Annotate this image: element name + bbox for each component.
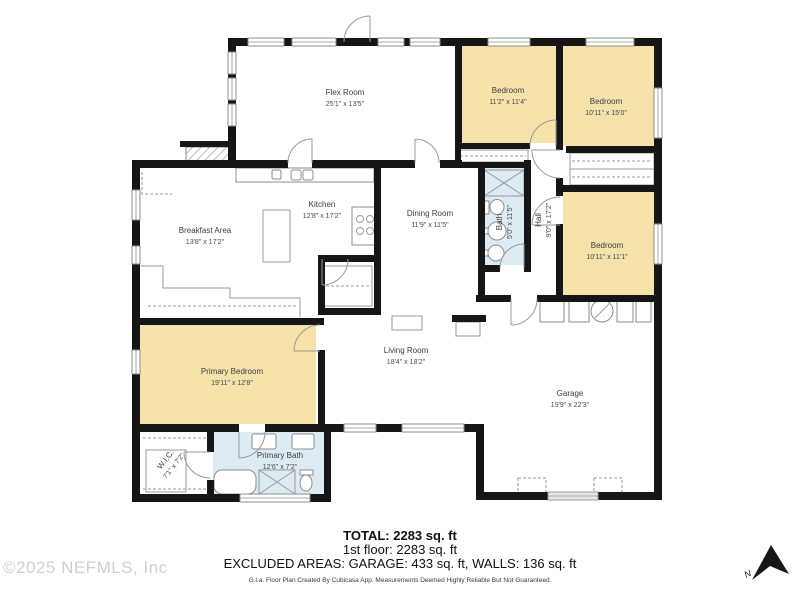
- console: [456, 322, 480, 336]
- window: [228, 52, 236, 74]
- svg-text:Bath: Bath: [495, 214, 504, 230]
- svg-text:11'9" x 11'5": 11'9" x 11'5": [411, 222, 449, 229]
- window: [586, 38, 634, 46]
- svg-text:5'0" x 11'5": 5'0" x 11'5": [507, 204, 514, 238]
- bedroom2-area: [563, 46, 654, 146]
- window: [248, 38, 284, 46]
- toilet: [300, 475, 312, 491]
- watermark: ©2025 NEFMLS, Inc: [3, 558, 168, 578]
- svg-text:Breakfast Area: Breakfast Area: [179, 226, 232, 235]
- svg-text:12'8" x 17'2": 12'8" x 17'2": [303, 213, 342, 220]
- toilet: [490, 200, 504, 215]
- svg-text:10'11" x 15'0": 10'11" x 15'0": [585, 110, 627, 117]
- bathtub: [214, 470, 256, 494]
- breakfast-bench: [141, 266, 300, 317]
- svg-text:9'0" x 17'2": 9'0" x 17'2": [546, 202, 553, 237]
- room-label-living: Living Room 18'4" x 18'2": [384, 346, 429, 366]
- window: [132, 190, 140, 220]
- svg-text:18'4" x 18'2": 18'4" x 18'2": [387, 359, 426, 366]
- appliance: [540, 300, 564, 322]
- appliance: [617, 300, 633, 322]
- first-floor-area: 1st floor: 2283 sq. ft: [0, 543, 800, 557]
- kitchen-sink-left: [291, 170, 301, 180]
- floor-plan: Flex Room 25'1" x 13'5" Bedroom 11'2" x …: [0, 0, 800, 600]
- vanity-sink: [292, 434, 314, 449]
- garage-door: [548, 492, 598, 500]
- window: [292, 38, 336, 46]
- svg-text:Kitchen: Kitchen: [309, 200, 336, 209]
- window: [378, 38, 404, 46]
- room-label-kitchen: Kitchen 12'8" x 17'2": [303, 200, 342, 220]
- garage-marker: [518, 478, 546, 494]
- svg-text:19'9" x 22'3": 19'9" x 22'3": [551, 402, 590, 409]
- svg-text:19'11" x 12'8": 19'11" x 12'8": [211, 380, 253, 387]
- console: [392, 316, 422, 330]
- vanity-sink: [252, 434, 276, 449]
- room-label-flex: Flex Room 25'1" x 13'5": [326, 88, 365, 108]
- window: [132, 246, 140, 264]
- window: [410, 38, 440, 46]
- disclaimer: G.l.a. Floor Plan Created By Cubicasa Ap…: [0, 577, 800, 584]
- svg-text:11'2" x 11'4": 11'2" x 11'4": [489, 99, 527, 106]
- svg-text:10'11" x 11'1": 10'11" x 11'1": [586, 254, 628, 261]
- kitchen-sink-right: [303, 170, 313, 180]
- window: [228, 104, 236, 126]
- svg-text:Flex Room: Flex Room: [326, 88, 365, 97]
- dishwasher-icon: [272, 170, 281, 179]
- svg-text:Bedroom: Bedroom: [590, 97, 623, 106]
- svg-text:13'8" x 17'2": 13'8" x 17'2": [186, 239, 225, 246]
- svg-text:Dining Room: Dining Room: [407, 209, 454, 218]
- toilet-tank: [300, 470, 313, 475]
- room-label-garage: Garage 19'9" x 22'3": [551, 389, 590, 409]
- floor-plan-page: Flex Room 25'1" x 13'5" Bedroom 11'2" x …: [0, 0, 800, 600]
- total-area: TOTAL: 2283 sq. ft: [0, 529, 800, 543]
- kitchen-island: [263, 210, 290, 262]
- room-label-breakfast: Breakfast Area 13'8" x 17'2": [179, 226, 232, 246]
- window: [654, 224, 662, 264]
- window: [344, 424, 376, 432]
- window: [132, 350, 140, 374]
- breakfast-counter: [142, 172, 172, 194]
- window: [240, 494, 310, 502]
- svg-text:Primary Bath: Primary Bath: [257, 451, 303, 460]
- window: [488, 38, 530, 46]
- window: [654, 88, 662, 138]
- svg-text:Hall: Hall: [534, 213, 543, 227]
- window: [402, 424, 464, 432]
- svg-text:Bedroom: Bedroom: [591, 241, 624, 250]
- svg-text:25'1" x 13'5": 25'1" x 13'5": [326, 101, 365, 108]
- appliance: [636, 300, 651, 322]
- svg-text:Primary Bedroom: Primary Bedroom: [201, 367, 264, 376]
- room-label-hall: Hall 9'0" x 17'2": [534, 202, 553, 237]
- appliance: [569, 300, 589, 322]
- svg-text:Living Room: Living Room: [384, 346, 429, 355]
- svg-text:12'6" x 7'2": 12'6" x 7'2": [263, 464, 298, 471]
- window: [228, 78, 236, 100]
- room-label-dining: Dining Room 11'9" x 11'5": [407, 209, 454, 229]
- svg-text:Bedroom: Bedroom: [492, 86, 525, 95]
- svg-text:Garage: Garage: [557, 389, 584, 398]
- entry-steps: [186, 147, 230, 161]
